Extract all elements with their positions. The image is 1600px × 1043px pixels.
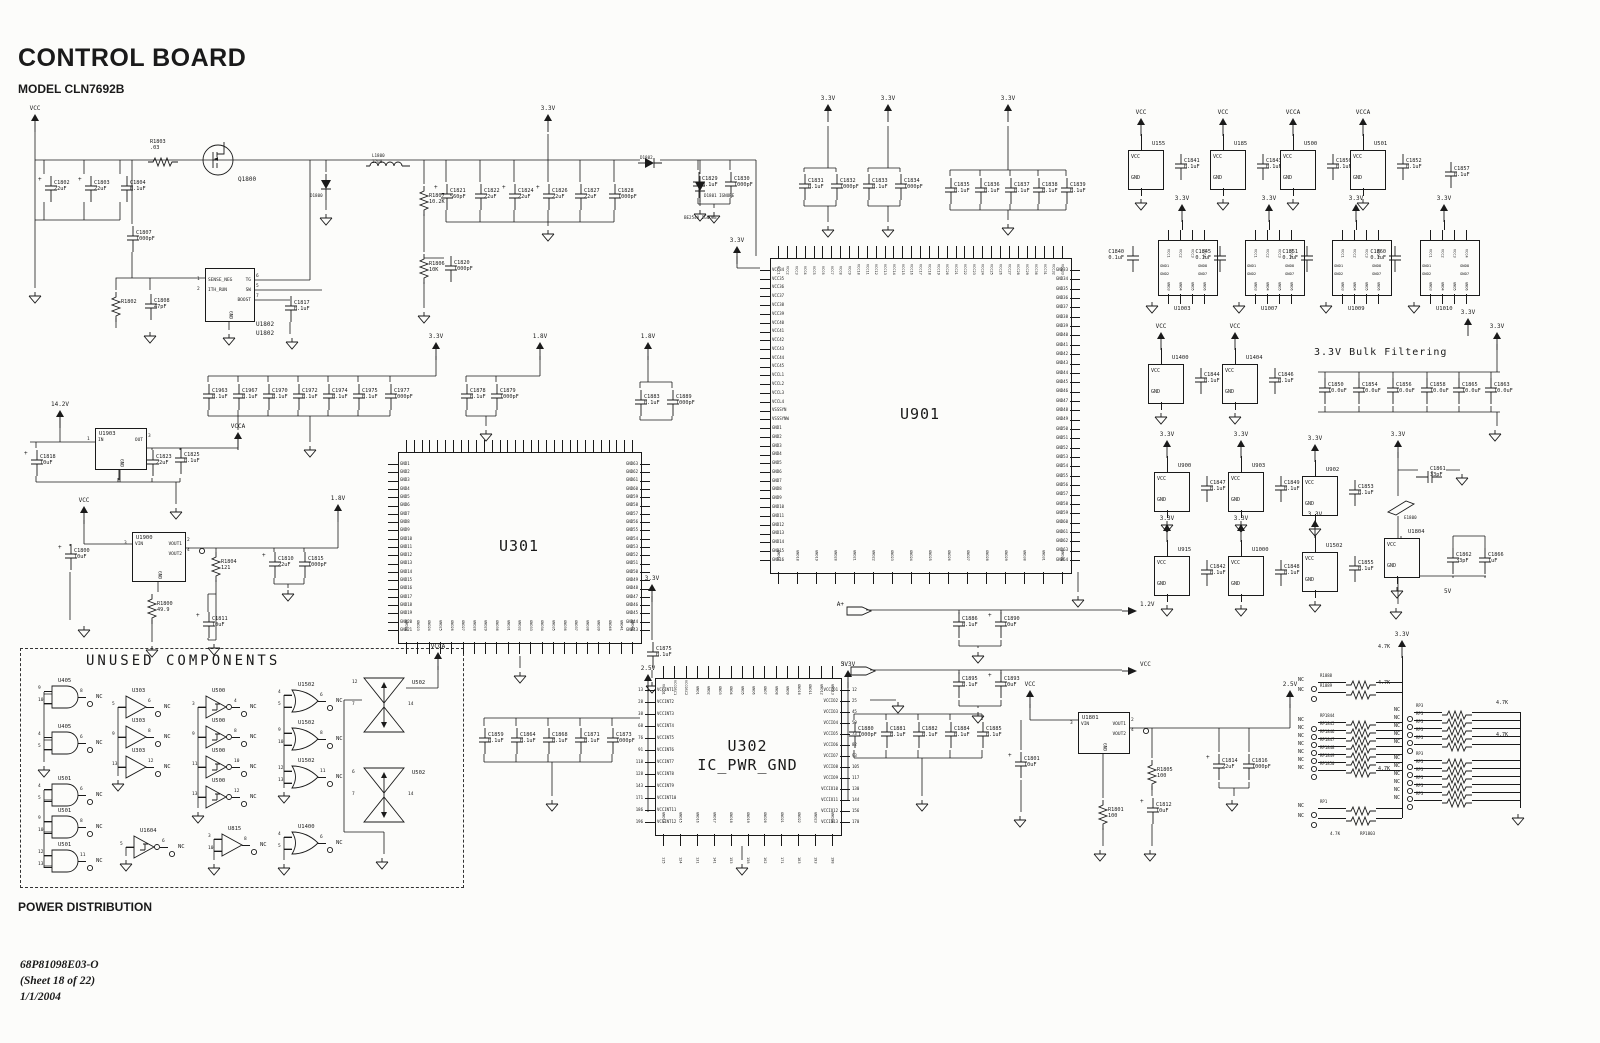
power-flag-label: 3.3V	[1477, 324, 1517, 331]
pin-label: GND10	[796, 680, 800, 706]
wire	[1414, 744, 1442, 745]
pin-label: GND8	[1285, 264, 1294, 268]
wire	[515, 440, 516, 452]
nc-label: NC	[250, 764, 257, 770]
pin-label: VCC15	[900, 260, 904, 286]
capacitor-label: C182722uF	[584, 189, 600, 201]
wire	[1070, 466, 1080, 467]
power-flag-VCCA	[233, 432, 243, 454]
pin-label: VCC30	[1033, 260, 1037, 286]
resistor-label: RP1845	[1320, 722, 1334, 727]
resistor-value: 4.7K	[1378, 767, 1390, 773]
power-flag-label: 3.3V	[1336, 196, 1376, 203]
wire	[840, 800, 850, 801]
wire	[1315, 536, 1316, 552]
capacitor-label: C180847pF	[154, 299, 170, 311]
wire	[760, 507, 770, 508]
wire	[546, 440, 547, 452]
nc-circle	[168, 843, 176, 862]
wire	[640, 572, 650, 573]
pin-number: 12	[278, 766, 283, 771]
capacitor-label: C18791000pF	[500, 389, 519, 401]
wire	[760, 498, 770, 499]
wire	[232, 767, 240, 768]
ic-name-U1900: U1900	[136, 535, 153, 541]
pin-number: 131	[695, 848, 699, 867]
capacitor-label: C18810.1uF	[890, 727, 906, 739]
pin-label: GND	[156, 564, 161, 583]
nc-label: NC	[96, 740, 103, 746]
pin-number: 4	[278, 832, 281, 837]
gnd-symbol	[1092, 848, 1108, 867]
gnd-symbol	[1000, 222, 1016, 241]
wire	[146, 707, 154, 708]
gate-ref: U1502	[298, 720, 315, 726]
wire	[714, 834, 715, 846]
power-flag-VCC	[30, 114, 40, 136]
wire	[760, 481, 770, 482]
pin-number: 171	[629, 796, 643, 801]
capacitor-label: C18310.1uF	[808, 179, 824, 191]
wire	[1070, 448, 1080, 449]
pin-label: GND58	[1038, 502, 1068, 507]
wire	[1070, 513, 1080, 514]
resistor-label: RP1849	[1320, 754, 1334, 759]
pin-number: 8	[80, 819, 83, 824]
wire	[640, 539, 650, 540]
wire	[1269, 220, 1270, 230]
pin-label: GND	[227, 304, 232, 323]
wire	[840, 701, 850, 702]
wire	[832, 666, 833, 678]
pin-label: VCCINT4	[657, 724, 674, 729]
wire	[463, 642, 464, 654]
wire	[621, 642, 622, 654]
pin-label: GND6	[1289, 276, 1293, 295]
wire	[44, 867, 52, 868]
gate-ref: U500	[212, 718, 225, 724]
wire	[564, 642, 565, 654]
wire	[1182, 220, 1183, 230]
wire	[1472, 776, 1520, 777]
gnd-symbol	[512, 670, 528, 689]
wire	[388, 597, 398, 598]
pin-label: ITH_RUN	[208, 288, 227, 293]
ic-name-U901: U901	[770, 406, 1070, 423]
pin-label: GND32	[517, 616, 521, 642]
wire	[760, 384, 770, 385]
wire	[422, 440, 423, 452]
wire	[429, 440, 430, 452]
wire	[1318, 818, 1346, 819]
wire	[198, 707, 206, 708]
wire	[640, 506, 650, 507]
resistor-label: R1889	[1320, 684, 1332, 689]
pin-label: VCC12	[874, 260, 878, 286]
pin-number: 7	[352, 702, 355, 707]
pin-label: GND	[1305, 502, 1314, 508]
nc-label: NC	[336, 698, 343, 704]
resistor-label: RP1850	[1320, 762, 1334, 767]
wire	[485, 642, 486, 654]
wire	[609, 642, 610, 654]
cap-polarity: +	[78, 177, 82, 184]
wire	[1167, 540, 1168, 556]
ic-name-U1007: U1007	[1261, 306, 1278, 312]
power-flag-label: 3.3V	[1382, 632, 1422, 639]
wire	[858, 246, 859, 258]
capacitor-label: C18520.1uF	[1406, 159, 1422, 171]
pin-label: GND5	[400, 495, 410, 500]
power-flag-label: VCC	[64, 498, 104, 505]
wire	[388, 481, 398, 482]
pin-number: 13	[278, 778, 283, 783]
wire	[44, 737, 52, 738]
power-flag-label: 3.3V	[1295, 436, 1335, 443]
wire	[78, 697, 86, 698]
resistor-label: RP3	[1416, 720, 1423, 725]
wire	[531, 440, 532, 452]
pin-label: GND2	[706, 680, 710, 706]
gnd-symbol	[374, 856, 390, 875]
pin-label: VCCIO7	[808, 754, 838, 759]
net-arrow-VCC	[1122, 661, 1138, 680]
resistor-label: R180049.9	[157, 602, 173, 614]
pin-label: GND	[1353, 176, 1362, 182]
pin-label: GND10	[772, 505, 784, 510]
wire	[474, 642, 475, 654]
pin-label: VCC	[1353, 155, 1362, 161]
wire	[1070, 523, 1080, 524]
pin-label: GND61	[608, 478, 638, 483]
wire	[1070, 532, 1080, 533]
pin-label: GND1	[1422, 264, 1431, 268]
wire	[760, 428, 770, 429]
pin-label: GND3	[1166, 276, 1170, 295]
wire	[1293, 134, 1294, 150]
capacitor-label: C18301000pF	[734, 177, 753, 189]
nc-label: NC	[164, 734, 171, 740]
nc-label: NC	[1394, 788, 1400, 794]
wire	[1472, 744, 1520, 745]
wire	[645, 750, 655, 751]
wire	[840, 723, 850, 724]
wire	[840, 734, 850, 735]
wire	[1279, 294, 1280, 304]
pin-label: VCC9	[847, 260, 851, 286]
nc-circle	[250, 841, 258, 860]
capacitor-C1840	[1126, 246, 1140, 276]
pin-number: 3	[124, 541, 127, 546]
pin-label: VCC8	[838, 260, 842, 286]
gnd-symbol	[206, 642, 222, 661]
resistor-label: R1803.03	[150, 140, 166, 152]
pin-label: GND17	[712, 808, 716, 834]
wire	[1168, 294, 1169, 304]
ic-name-U502: U502	[412, 770, 425, 776]
pin-label: VCCIO11	[808, 798, 838, 803]
pin-label: VCCINT7	[657, 760, 674, 765]
pin-number: 7	[256, 294, 259, 299]
capacitor-label: C182622uF	[552, 189, 568, 201]
wire	[284, 707, 292, 708]
pin-label: VCC1	[1428, 243, 1432, 262]
wire	[1472, 728, 1520, 729]
wire	[1035, 246, 1036, 258]
wire	[1223, 134, 1224, 150]
wire	[1241, 540, 1242, 556]
nc-circle	[1310, 814, 1318, 833]
gnd-symbol	[318, 212, 334, 231]
wire	[760, 463, 770, 464]
cap-polarity: +	[434, 185, 438, 192]
pin-label: VCCINT8	[657, 772, 674, 777]
wire	[453, 440, 454, 452]
pin-label: GND13	[830, 680, 834, 706]
ic-name-U502: U502	[412, 680, 425, 686]
net-arrow-label: 1.2V	[1140, 602, 1154, 609]
wire	[1378, 230, 1379, 240]
capacitor-label: C18341000pF	[904, 179, 923, 191]
capacitor-label: C18460.1uF	[1278, 373, 1294, 385]
gate-ref: U501	[58, 842, 71, 848]
pin-label: VCC32	[1051, 260, 1055, 286]
text-label: UNUSED COMPONENTS	[86, 650, 280, 669]
capacitor-C1860	[1388, 246, 1402, 276]
pin-label: GND29	[1003, 546, 1007, 572]
pin-number: 9	[38, 686, 41, 691]
pin-label: GND9	[785, 680, 789, 706]
wire	[598, 642, 599, 654]
wire	[840, 246, 841, 258]
wire	[640, 555, 650, 556]
capacitor-label: C18420.1uF	[1210, 565, 1226, 577]
wire	[760, 437, 770, 438]
cap-polarity: +	[502, 185, 506, 192]
wire	[748, 834, 749, 846]
wire	[1291, 294, 1292, 304]
pin-label: VCC28	[1016, 260, 1020, 286]
gnd-symbol	[1142, 848, 1158, 867]
wire	[388, 506, 398, 507]
power-flag-3.3V	[1393, 440, 1403, 462]
wire	[1356, 220, 1357, 230]
wire	[1466, 294, 1467, 304]
gnd-symbol	[302, 444, 318, 463]
pin-label: VCCINT12	[657, 820, 676, 825]
power-flag-label: 14.2V	[40, 402, 80, 409]
pin-label: GND6	[751, 680, 755, 706]
resistor-label: RP3	[1416, 760, 1423, 765]
pin-label: VCC1	[776, 260, 780, 286]
pin-number: 4	[187, 548, 190, 553]
gate-ref: U303	[132, 748, 145, 754]
resistor-label: R1805100	[1157, 768, 1173, 780]
wire	[760, 288, 770, 289]
wire	[388, 530, 398, 531]
wire	[840, 767, 850, 768]
nc-label: NC	[1298, 814, 1304, 820]
capacitor-label: C18820.1uF	[922, 727, 938, 739]
wire	[284, 783, 292, 784]
pin-label: GND30	[1022, 546, 1026, 572]
gnd-symbol	[1227, 411, 1243, 430]
pin-label: VCC	[1387, 543, 1396, 549]
pin-number: 4	[38, 732, 41, 737]
pin-label: GND51	[1038, 436, 1068, 441]
wire	[821, 666, 822, 678]
nc-label: NC	[1298, 750, 1304, 756]
wire	[585, 440, 586, 452]
pin-number: 12	[352, 680, 357, 685]
capacitor-label: C185810.0uF	[1430, 383, 1449, 395]
nc-label: NC	[1298, 804, 1304, 810]
wire	[484, 440, 485, 452]
wire	[1070, 326, 1080, 327]
wire	[760, 340, 770, 341]
pin-number: 170	[852, 820, 859, 825]
wire	[1141, 134, 1142, 150]
wire	[1293, 188, 1294, 196]
pin-label: IN	[98, 438, 103, 443]
wire	[1070, 429, 1080, 430]
wire	[429, 642, 430, 654]
mosfet-Q1800	[200, 142, 236, 182]
capacitor-label: C18850.1uF	[986, 727, 1002, 739]
pin-label: VCCIO8	[808, 765, 838, 770]
gnd-symbol	[1070, 594, 1086, 613]
resistor-network	[1442, 794, 1472, 813]
wire	[760, 411, 770, 412]
capacitor-label: C18550.1uF	[1358, 561, 1374, 573]
wire	[388, 613, 398, 614]
transceiver-U502	[362, 676, 406, 738]
wire	[1430, 230, 1431, 240]
pin-label: GND38	[585, 616, 589, 642]
pin-label: GND13	[400, 561, 412, 566]
gnd-symbol	[76, 624, 92, 643]
wire	[787, 246, 788, 258]
nc-label: NC	[336, 840, 343, 846]
wire	[1235, 402, 1236, 410]
wire	[1520, 744, 1521, 808]
gate-or-U1400	[292, 832, 320, 858]
gnd-symbol	[221, 332, 237, 351]
capacitor-label: C18161000pF	[1252, 759, 1271, 771]
pin-label: GND	[1151, 390, 1160, 396]
wire	[388, 555, 398, 556]
nc-label: NC	[1394, 716, 1400, 722]
pin-label: VCCOSC2	[684, 680, 688, 706]
pin-label: GND53	[1038, 455, 1068, 460]
pin-number: 5	[278, 844, 281, 849]
wire	[1472, 712, 1520, 713]
wire	[1363, 188, 1364, 196]
wire	[1070, 485, 1080, 486]
wire	[840, 745, 850, 746]
capacitor-label: C181210uF	[1156, 803, 1172, 815]
nc-circle	[86, 739, 94, 758]
wire	[1472, 792, 1520, 793]
wire	[78, 861, 86, 862]
wire	[1472, 760, 1520, 761]
pin-label: GND	[118, 452, 123, 471]
power-flag-label: VCC	[1215, 324, 1255, 331]
nc-label: NC	[164, 704, 171, 710]
pin-number: 12	[38, 850, 43, 855]
pin-number: 13	[192, 792, 197, 797]
pin-label: GND25	[438, 616, 442, 642]
conn-tag-label: A+	[788, 602, 844, 609]
capacitor-label: C19630.1uF	[212, 389, 228, 401]
pin-label: GND8	[1372, 264, 1381, 268]
pin-number: 6	[148, 699, 151, 704]
wire	[542, 642, 543, 654]
wire	[991, 246, 992, 258]
wire	[417, 642, 418, 654]
pin-label: GND54	[608, 537, 638, 542]
resistor-label: R180610K	[429, 262, 445, 274]
wire	[118, 707, 126, 708]
capacitor-label: C18330.1uF	[872, 179, 888, 191]
wire	[44, 749, 52, 750]
pin-label: VCCL2	[772, 382, 784, 387]
gate-ref: U1502	[298, 682, 315, 688]
pin-label: GND44	[1038, 371, 1068, 376]
wire	[1520, 712, 1521, 744]
pin-label: VCC41	[772, 329, 784, 334]
pin-number: 10	[208, 846, 213, 851]
pin-label: GND4	[1265, 276, 1269, 295]
wire	[798, 666, 799, 678]
wire	[1241, 456, 1242, 472]
wire	[938, 246, 939, 258]
wire	[805, 246, 806, 258]
wire	[44, 821, 52, 822]
cap-polarity: +	[1140, 799, 1144, 806]
wire	[508, 642, 509, 654]
pin-label: GND39	[596, 616, 600, 642]
pin-number: 130	[852, 787, 859, 792]
nc-label: NC	[336, 736, 343, 742]
gnd-symbol	[1487, 428, 1503, 447]
pin-label: GND21	[779, 808, 783, 834]
resistor-network	[1346, 686, 1376, 705]
wire	[967, 572, 968, 584]
pin-label: GND5	[1452, 276, 1456, 295]
pin-number: 5	[256, 284, 259, 289]
resistor-network	[1346, 812, 1376, 831]
wire	[760, 472, 770, 473]
nc-circle	[326, 697, 334, 716]
power-flag-label: 3.3V	[1424, 196, 1464, 203]
pin-label: VCC	[1157, 561, 1166, 567]
capacitor-label: C180322uF	[94, 181, 110, 193]
pin-label: GND57	[608, 512, 638, 517]
pin-label: VCCIO3	[808, 710, 838, 715]
wire	[118, 767, 126, 768]
wire	[840, 778, 850, 779]
capacitor-label: C186310.0uF	[1494, 383, 1513, 395]
pin-label: VCC1	[1253, 243, 1257, 262]
wire	[388, 580, 398, 581]
pin-number: 128	[629, 772, 643, 777]
pin-label: GND1	[1247, 264, 1256, 268]
wire	[461, 440, 462, 452]
cap-polarity: +	[1206, 755, 1210, 762]
power-flag-3.3V	[1003, 104, 1013, 126]
resistor-label: RP3	[1416, 792, 1423, 797]
